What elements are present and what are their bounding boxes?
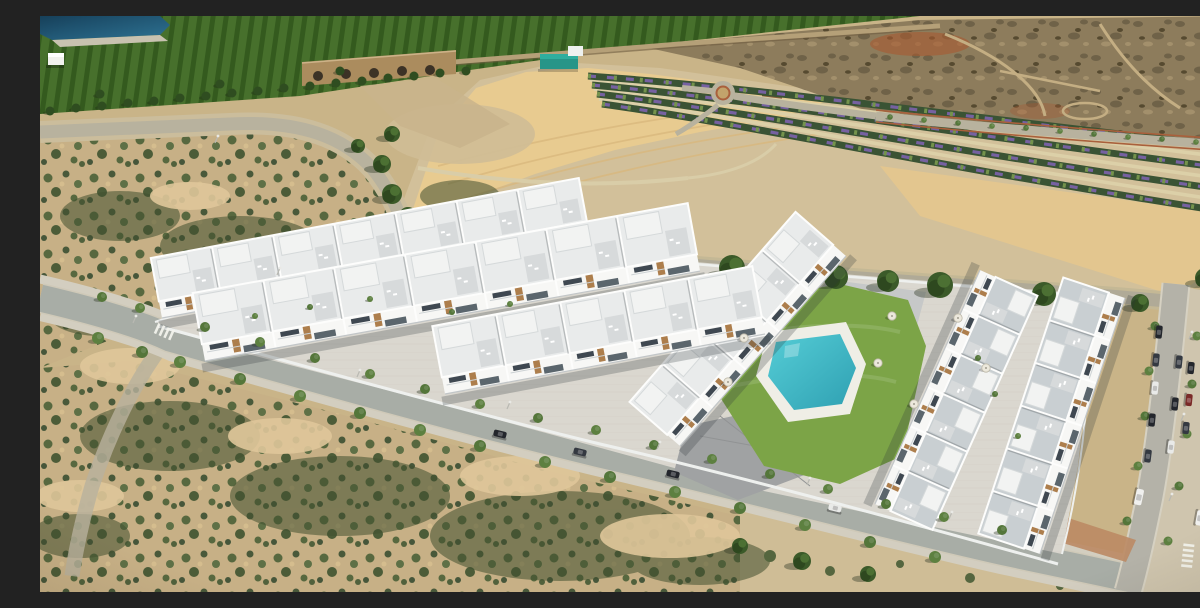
aerial-scene [40,16,1200,592]
aerial-photo: Aerial view of a modern white residentia… [40,16,1200,592]
vignette [40,16,1200,592]
